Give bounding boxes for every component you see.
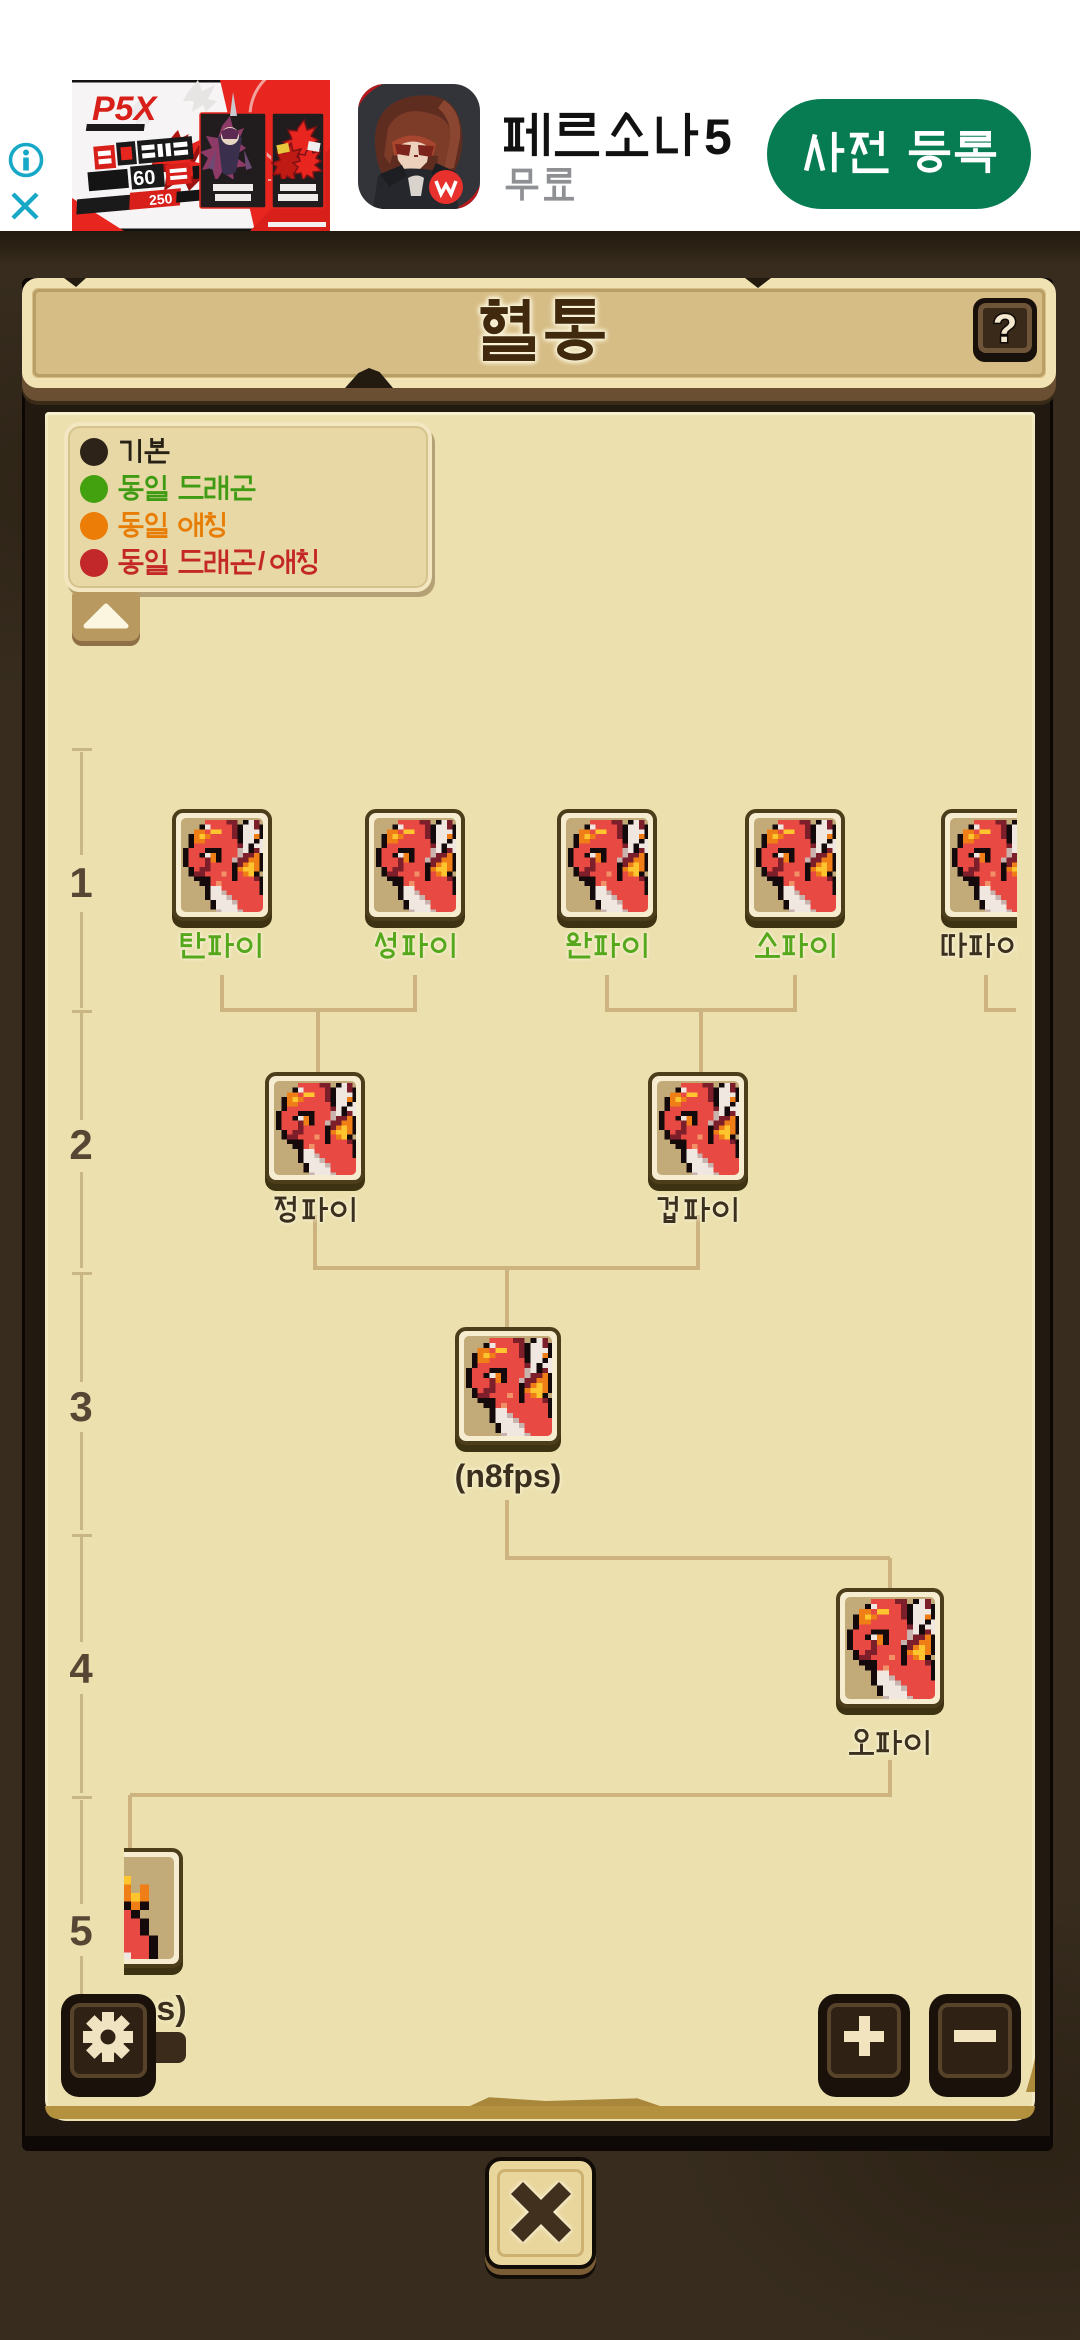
svg-text:P5X: P5X — [92, 90, 159, 128]
svg-text:5: 5 — [704, 112, 732, 162]
svg-text:60: 60 — [132, 166, 156, 190]
svg-text:?: ? — [993, 307, 1017, 351]
svg-text:250: 250 — [148, 190, 173, 208]
svg-text:/: / — [258, 549, 265, 576]
